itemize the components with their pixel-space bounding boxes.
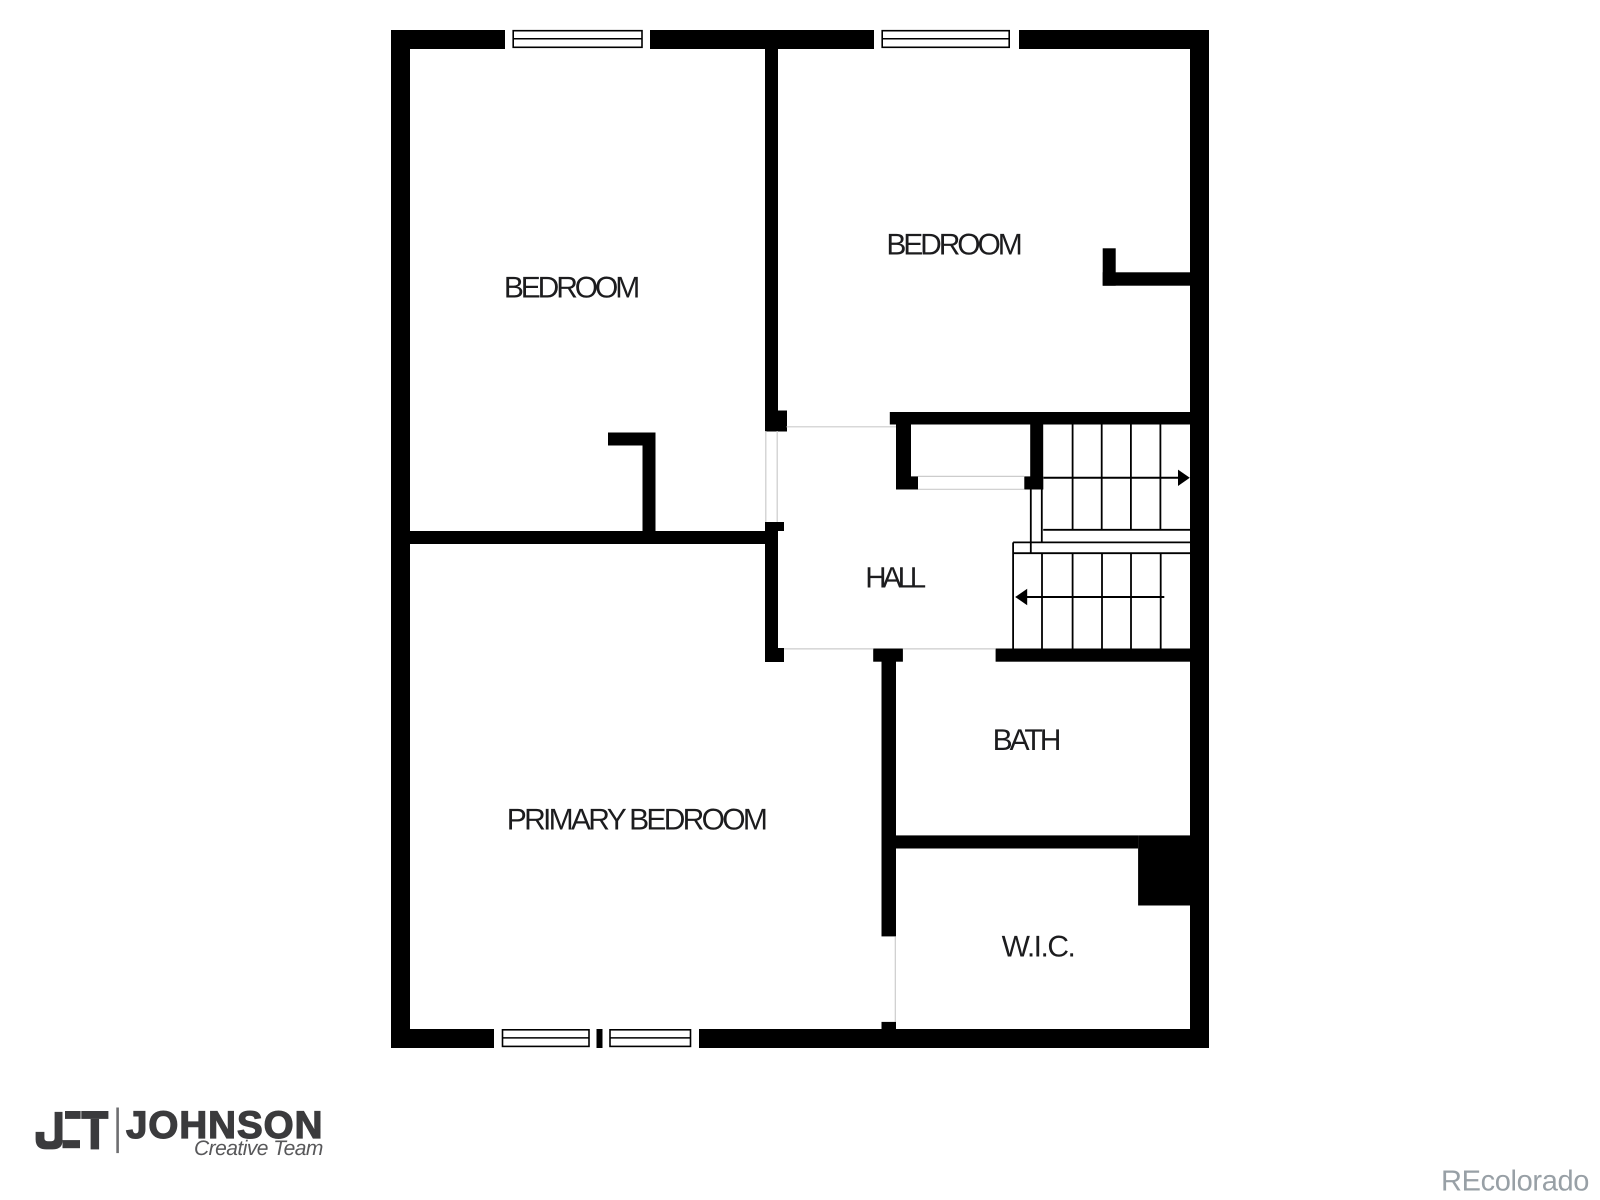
svg-text:BEDROOM: BEDROOM (504, 272, 638, 305)
svg-text:REcolorado: REcolorado (1441, 1166, 1589, 1198)
svg-text:HALL: HALL (865, 562, 925, 595)
svg-text:Creative Team: Creative Team (194, 1137, 324, 1160)
svg-text:BATH: BATH (993, 724, 1060, 757)
svg-text:BEDROOM: BEDROOM (886, 229, 1020, 262)
svg-text:W.I.C.: W.I.C. (1002, 931, 1075, 964)
svg-text:PRIMARY BEDROOM: PRIMARY BEDROOM (507, 804, 766, 837)
